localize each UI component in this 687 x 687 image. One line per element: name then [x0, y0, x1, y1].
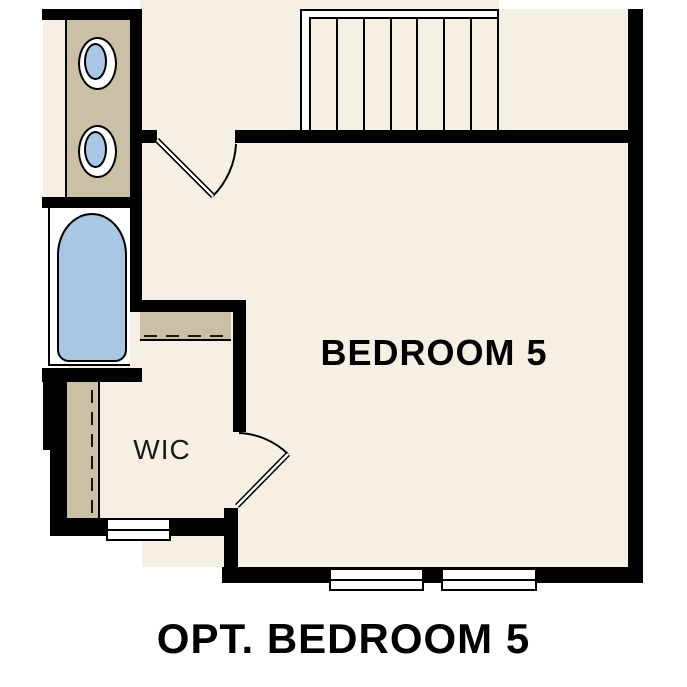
vanity-counter	[65, 20, 130, 197]
window	[329, 568, 424, 591]
sink-basin	[84, 131, 107, 168]
stair-tread	[470, 19, 497, 131]
floor-plan-canvas: BEDROOM 5 WIC OPT. BEDROOM 5	[0, 0, 687, 687]
closet-shelf-left	[67, 382, 100, 518]
bathtub-alcove	[48, 208, 130, 366]
wall-bedroom-bottom	[222, 567, 643, 583]
sink-icon	[78, 125, 117, 178]
stair-tread	[416, 19, 443, 131]
stair-tread	[390, 19, 417, 131]
wall-outer-left-upper	[43, 378, 67, 450]
window	[441, 568, 537, 591]
window-divider	[107, 529, 170, 531]
wic-label: WIC	[133, 434, 190, 466]
wall-bath-right	[130, 9, 142, 312]
bathtub-icon	[57, 213, 127, 362]
sink-basin	[84, 43, 107, 80]
stair-tread	[336, 19, 363, 131]
bedroom-label: BEDROOM 5	[320, 332, 547, 374]
window-divider	[330, 579, 423, 581]
wall-wic-right	[233, 300, 246, 432]
stair-tread	[443, 19, 470, 131]
wall-bedroom-top	[235, 130, 643, 143]
wall-bath-top	[42, 9, 140, 20]
wall-right	[628, 9, 643, 583]
stairs-treads	[309, 17, 497, 131]
floor-stair-landing	[499, 9, 628, 133]
plan-caption: OPT. BEDROOM 5	[0, 615, 687, 663]
stair-tread	[363, 19, 390, 131]
stair-tread	[311, 19, 336, 131]
stairs	[300, 9, 499, 133]
wall-vanity-bottom	[42, 197, 130, 208]
closet-shelf-top	[140, 312, 231, 341]
wall-outer-left-lower	[50, 450, 67, 518]
sink-icon	[78, 37, 117, 90]
wall-door-jamb	[140, 130, 157, 143]
window-divider	[442, 579, 536, 581]
window	[106, 518, 171, 541]
wall-wic-top	[130, 300, 237, 312]
